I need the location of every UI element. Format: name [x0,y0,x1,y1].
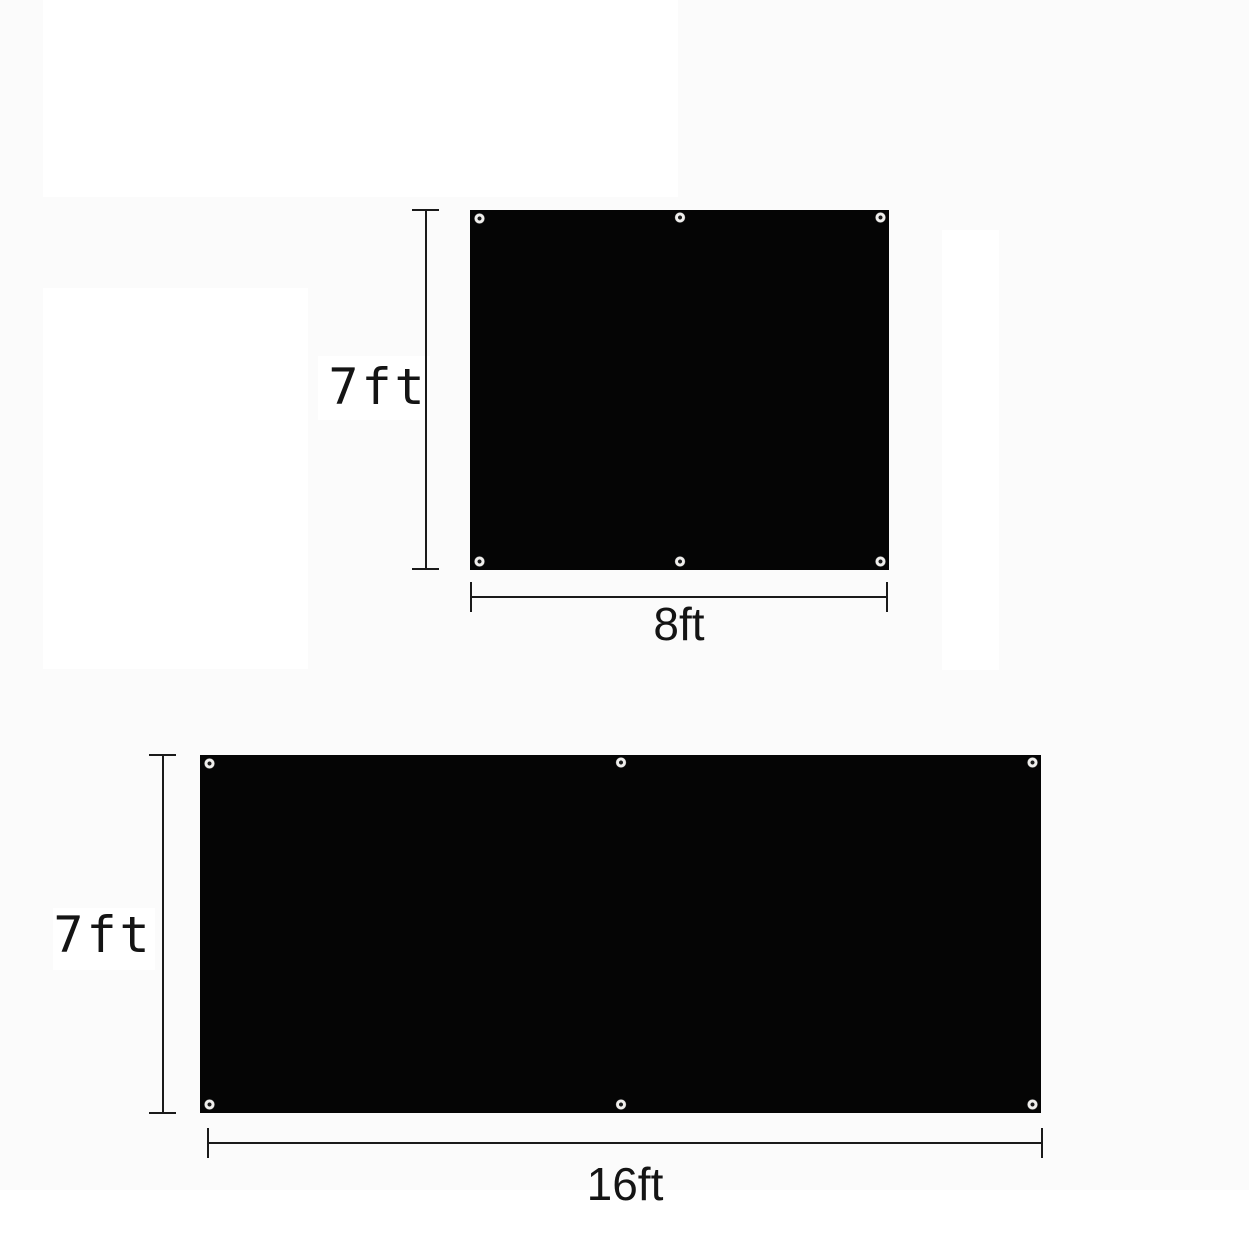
dimension-line [162,754,164,1114]
grommet-icon [1027,1099,1038,1110]
grommet-icon [1027,757,1038,768]
grommet-icon [204,1099,215,1110]
background-patch [942,230,999,670]
tarp-panel-8ft [470,210,889,570]
height-dimension-line [149,754,176,1114]
background-patch [43,0,678,197]
grommet-icon [674,212,685,223]
grommet-icon [674,556,685,567]
grommet-icon [204,758,215,769]
height-label: 7ft [328,362,428,412]
tarp-panel-16ft [200,755,1041,1113]
dimension-tick [412,568,439,570]
background-patch [43,288,308,669]
grommet-icon [474,556,485,567]
width-label: 8ft [470,601,888,647]
grommet-icon [875,212,886,223]
grommet-icon [615,1099,626,1110]
grommet-icon [474,213,485,224]
dimension-tick [149,1112,176,1114]
width-label: 16ft [207,1161,1043,1207]
product-dimension-diagram: 7ft 8ft 7ft 16ft [0,0,1249,1249]
dimension-tick [1041,1128,1043,1158]
grommet-icon [875,556,886,567]
grommet-icon [615,757,626,768]
width-dimension-line [207,1128,1043,1158]
dimension-line [207,1142,1043,1144]
height-label: 7ft [53,910,153,960]
